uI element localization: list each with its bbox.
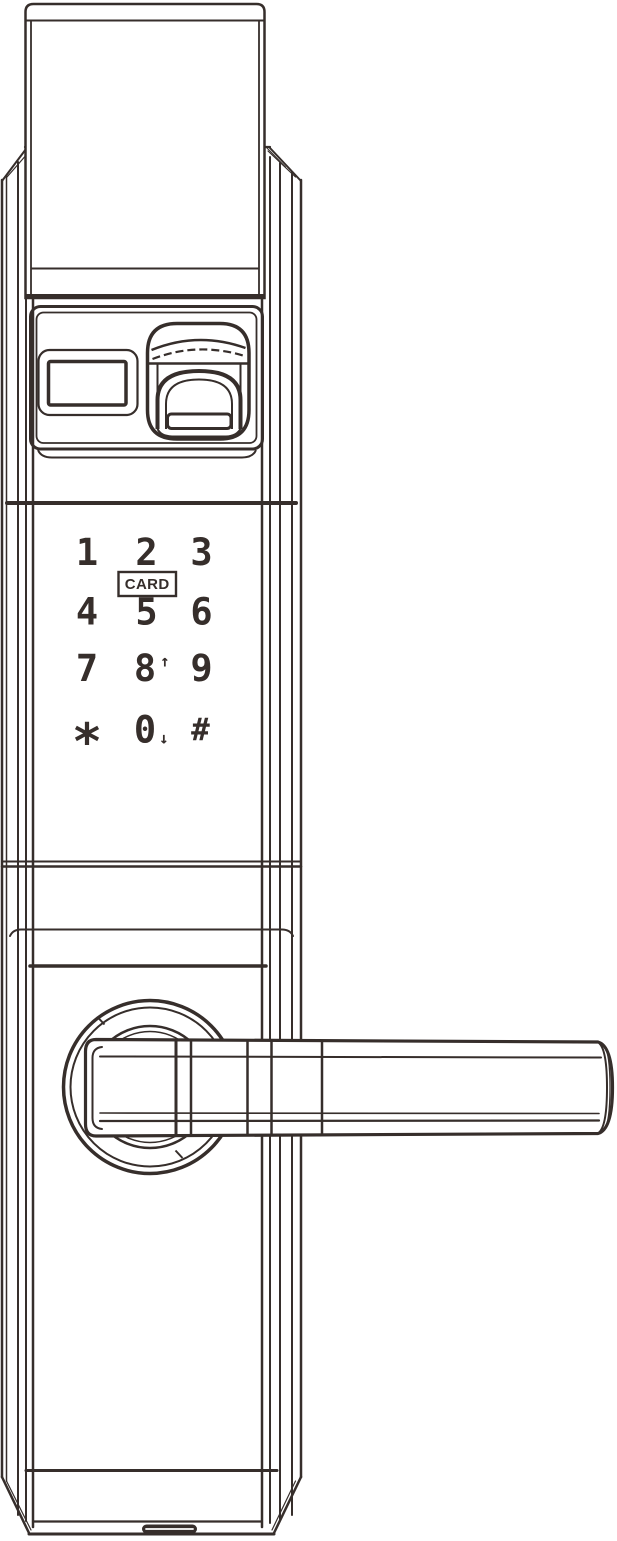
handle-assembly [64,1001,613,1174]
sensor-module-panel [31,307,263,458]
display-window [39,350,138,415]
keypad-key-1: 1 [76,531,98,574]
keypad-key-hash: # [191,712,210,748]
fingerprint-scanner [148,324,250,440]
keypad-key-6: 6 [190,591,212,634]
keypad-key-5: 5 [135,591,157,634]
down-arrow-icon: ↓ [159,729,169,748]
keypad-key-9: 9 [190,647,212,690]
keypad-key-3: 3 [190,531,212,574]
keypad-key-star: * [72,713,102,771]
handle-section-top-line [10,930,293,937]
keypad-key-0: 0 [134,709,156,752]
keypad-key-4: 4 [76,591,98,634]
door-lock-technical-drawing: 1 2 3 CARD 4 5 6 7 8 ↑ 9 * 0 ↓ # [0,0,617,1541]
keypad-key-7: 7 [76,647,98,690]
top-cover-block [26,4,265,298]
up-arrow-icon: ↑ [160,652,170,671]
keypad-key-2: 2 [135,531,157,574]
keypad-key-8: 8 [134,647,156,690]
emergency-port-slot [142,1525,197,1534]
handle-lever [86,1040,613,1137]
top-cover-outline [26,4,265,298]
fingerprint-base-bar [168,414,232,429]
fingerprint-cover-arc [152,340,246,350]
keypad: 1 2 3 CARD 4 5 6 7 8 ↑ 9 * 0 ↓ # [72,531,213,771]
